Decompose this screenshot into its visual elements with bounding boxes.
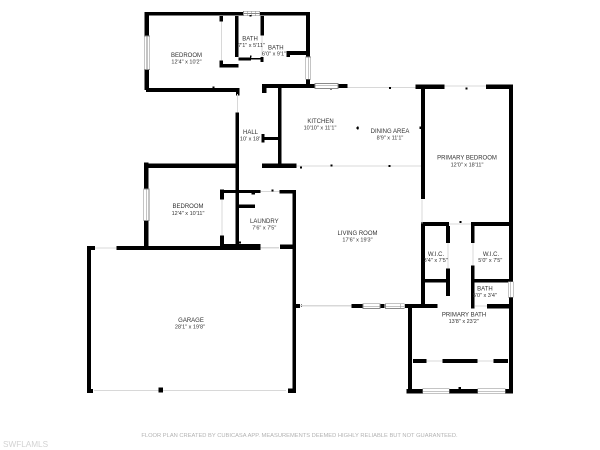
svg-text:KITCHEN: KITCHEN — [307, 119, 333, 125]
svg-text:5'0" x 7'5": 5'0" x 7'5" — [478, 258, 502, 264]
svg-text:W.I.C.: W.I.C. — [428, 252, 445, 258]
svg-text:PRIMARY BEDROOM: PRIMARY BEDROOM — [437, 156, 497, 162]
svg-text:12'4" x 10'11": 12'4" x 10'11" — [172, 211, 205, 217]
svg-text:HALL: HALL — [243, 130, 259, 136]
svg-text:5'0" x 3'4": 5'0" x 3'4" — [473, 293, 497, 299]
svg-text:7'6" x 7'5": 7'6" x 7'5" — [252, 226, 276, 232]
svg-text:SWFLAMLS: SWFLAMLS — [3, 440, 49, 449]
svg-text:6'0" x 9'1": 6'0" x 9'1" — [262, 52, 286, 58]
svg-text:FLOOR PLAN CREATED BY CUBICASA: FLOOR PLAN CREATED BY CUBICASA APP. MEAS… — [141, 433, 458, 439]
svg-text:BATH: BATH — [477, 287, 493, 293]
svg-text:8'9" x 11'1": 8'9" x 11'1" — [377, 136, 404, 142]
svg-text:GARAGE: GARAGE — [178, 318, 204, 324]
svg-text:10'10" x 11'1": 10'10" x 11'1" — [304, 126, 337, 132]
svg-text:12'0" x 18'11": 12'0" x 18'11" — [451, 162, 484, 168]
svg-text:BEDROOM: BEDROOM — [171, 53, 202, 59]
svg-text:LAUNDRY: LAUNDRY — [250, 219, 279, 225]
svg-text:BATH: BATH — [268, 45, 284, 51]
svg-text:12'4" x 10'2": 12'4" x 10'2" — [171, 60, 201, 66]
svg-text:3'4" x 7'5": 3'4" x 7'5" — [424, 258, 448, 264]
svg-text:17'6" x 19'3": 17'6" x 19'3" — [342, 238, 372, 244]
svg-text:W.I.C.: W.I.C. — [483, 252, 500, 258]
svg-text:10' x 18': 10' x 18' — [240, 136, 260, 142]
svg-text:PRIMARY BATH: PRIMARY BATH — [442, 313, 486, 319]
svg-text:7'1" x 5'11": 7'1" x 5'11" — [238, 43, 265, 49]
svg-text:DINING AREA: DINING AREA — [371, 129, 410, 135]
svg-text:BATH: BATH — [242, 37, 258, 43]
svg-text:LIVING ROOM: LIVING ROOM — [337, 231, 377, 237]
svg-text:13'8" x 23'2": 13'8" x 23'2" — [449, 319, 479, 325]
svg-text:BEDROOM: BEDROOM — [172, 204, 203, 210]
svg-text:28'1" x 19'8": 28'1" x 19'8" — [175, 325, 205, 331]
